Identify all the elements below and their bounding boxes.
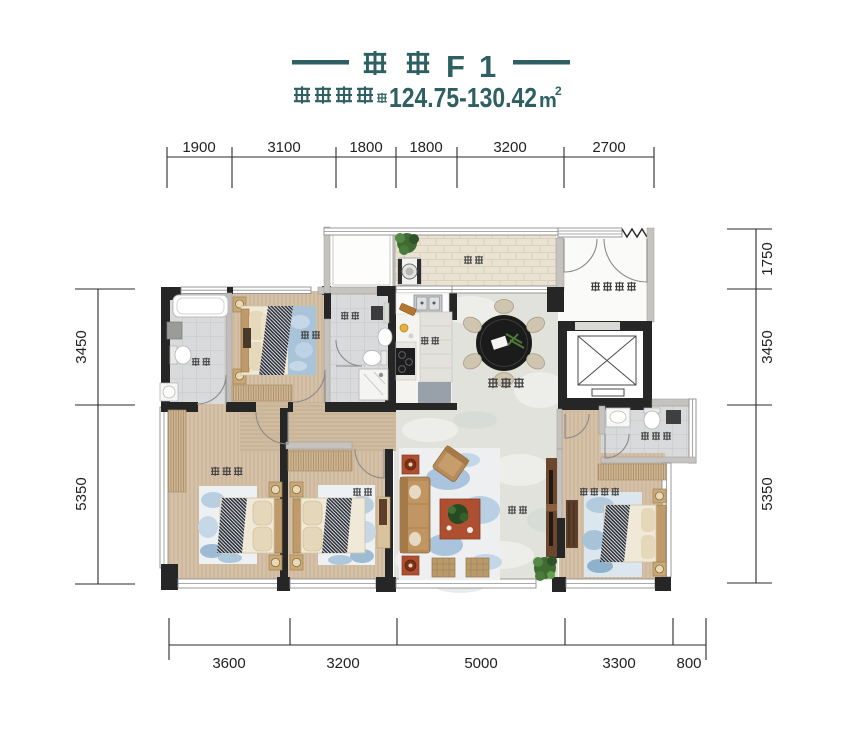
svg-text:3600: 3600 — [212, 655, 245, 672]
svg-text:3450: 3450 — [73, 330, 90, 363]
svg-text:800: 800 — [676, 655, 701, 672]
svg-text:1750: 1750 — [759, 242, 776, 275]
svg-text:F: F — [446, 49, 465, 84]
svg-text:3450: 3450 — [759, 330, 776, 363]
svg-text:3200: 3200 — [493, 139, 526, 156]
svg-text:5350: 5350 — [759, 477, 776, 510]
svg-text:2: 2 — [555, 84, 562, 98]
svg-text:1: 1 — [479, 49, 496, 84]
svg-text:124.75-130.42: 124.75-130.42 — [389, 82, 537, 113]
svg-text:1900: 1900 — [182, 139, 215, 156]
svg-text:3100: 3100 — [267, 139, 300, 156]
svg-text:3200: 3200 — [326, 655, 359, 672]
svg-text:3300: 3300 — [602, 655, 635, 672]
svg-text:1800: 1800 — [349, 139, 382, 156]
svg-text:2700: 2700 — [592, 139, 625, 156]
svg-text:5000: 5000 — [464, 655, 497, 672]
svg-text:5350: 5350 — [73, 477, 90, 510]
svg-text:1800: 1800 — [409, 139, 442, 156]
